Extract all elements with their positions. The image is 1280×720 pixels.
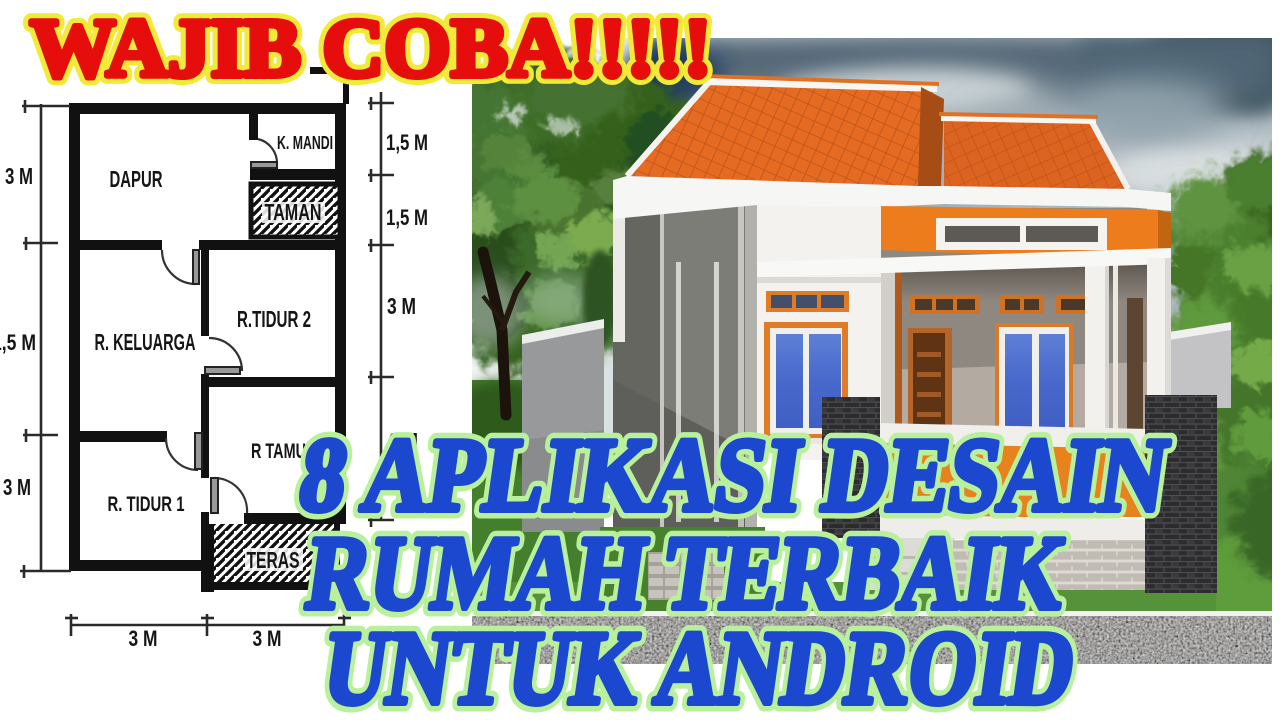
svg-text:UNTUK ANDROID: UNTUK ANDROID (317, 609, 1082, 720)
svg-text:TERAS: TERAS (247, 547, 300, 573)
svg-text:1,5 M: 1,5 M (386, 130, 428, 155)
svg-text:WAJIB COBA!!!!!: WAJIB COBA!!!!! (30, 2, 712, 95)
svg-text:R TAMU: R TAMU (251, 440, 306, 463)
svg-text:R.TIDUR 2: R.TIDUR 2 (237, 306, 311, 332)
svg-text:3 M: 3 M (5, 163, 33, 189)
svg-text:3 M: 3 M (129, 626, 158, 651)
svg-text:3 M: 3 M (387, 293, 416, 319)
svg-text:K. MANDI: K. MANDI (277, 133, 333, 153)
svg-text:1,5 M: 1,5 M (386, 205, 428, 230)
svg-text:1,5 M: 1,5 M (0, 330, 36, 355)
svg-text:3 M: 3 M (253, 626, 282, 651)
svg-text:3 M: 3 M (3, 474, 31, 500)
svg-text:DAPUR: DAPUR (110, 166, 163, 192)
svg-text:TAMAN: TAMAN (265, 199, 322, 225)
svg-text:R. KELUARGA: R. KELUARGA (95, 329, 196, 355)
svg-text:R. TIDUR 1: R. TIDUR 1 (108, 493, 185, 516)
